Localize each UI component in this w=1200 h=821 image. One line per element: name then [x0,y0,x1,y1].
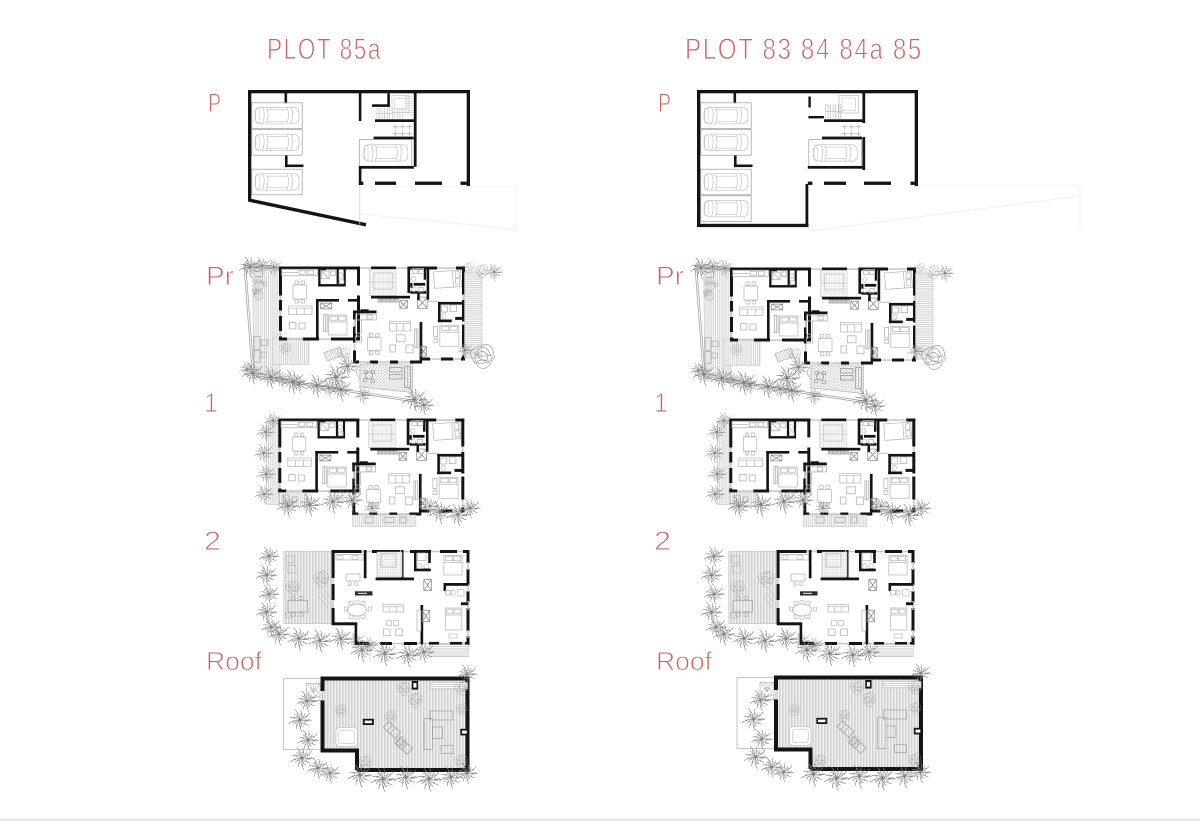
svg-text:2: 2 [204,526,221,556]
svg-text:PLOT 85a: PLOT 85a [267,33,382,66]
svg-text:P: P [208,88,221,118]
svg-text:Roof: Roof [206,646,263,676]
svg-text:Pr: Pr [656,261,684,291]
svg-text:P: P [658,88,671,118]
svg-text:PLOT 83 84 84a 85: PLOT 83 84 84a 85 [685,33,923,66]
svg-text:Pr: Pr [206,261,234,291]
svg-text:Roof: Roof [656,646,713,676]
svg-text:1: 1 [654,388,668,418]
svg-text:2: 2 [654,526,671,556]
svg-text:1: 1 [204,388,218,418]
